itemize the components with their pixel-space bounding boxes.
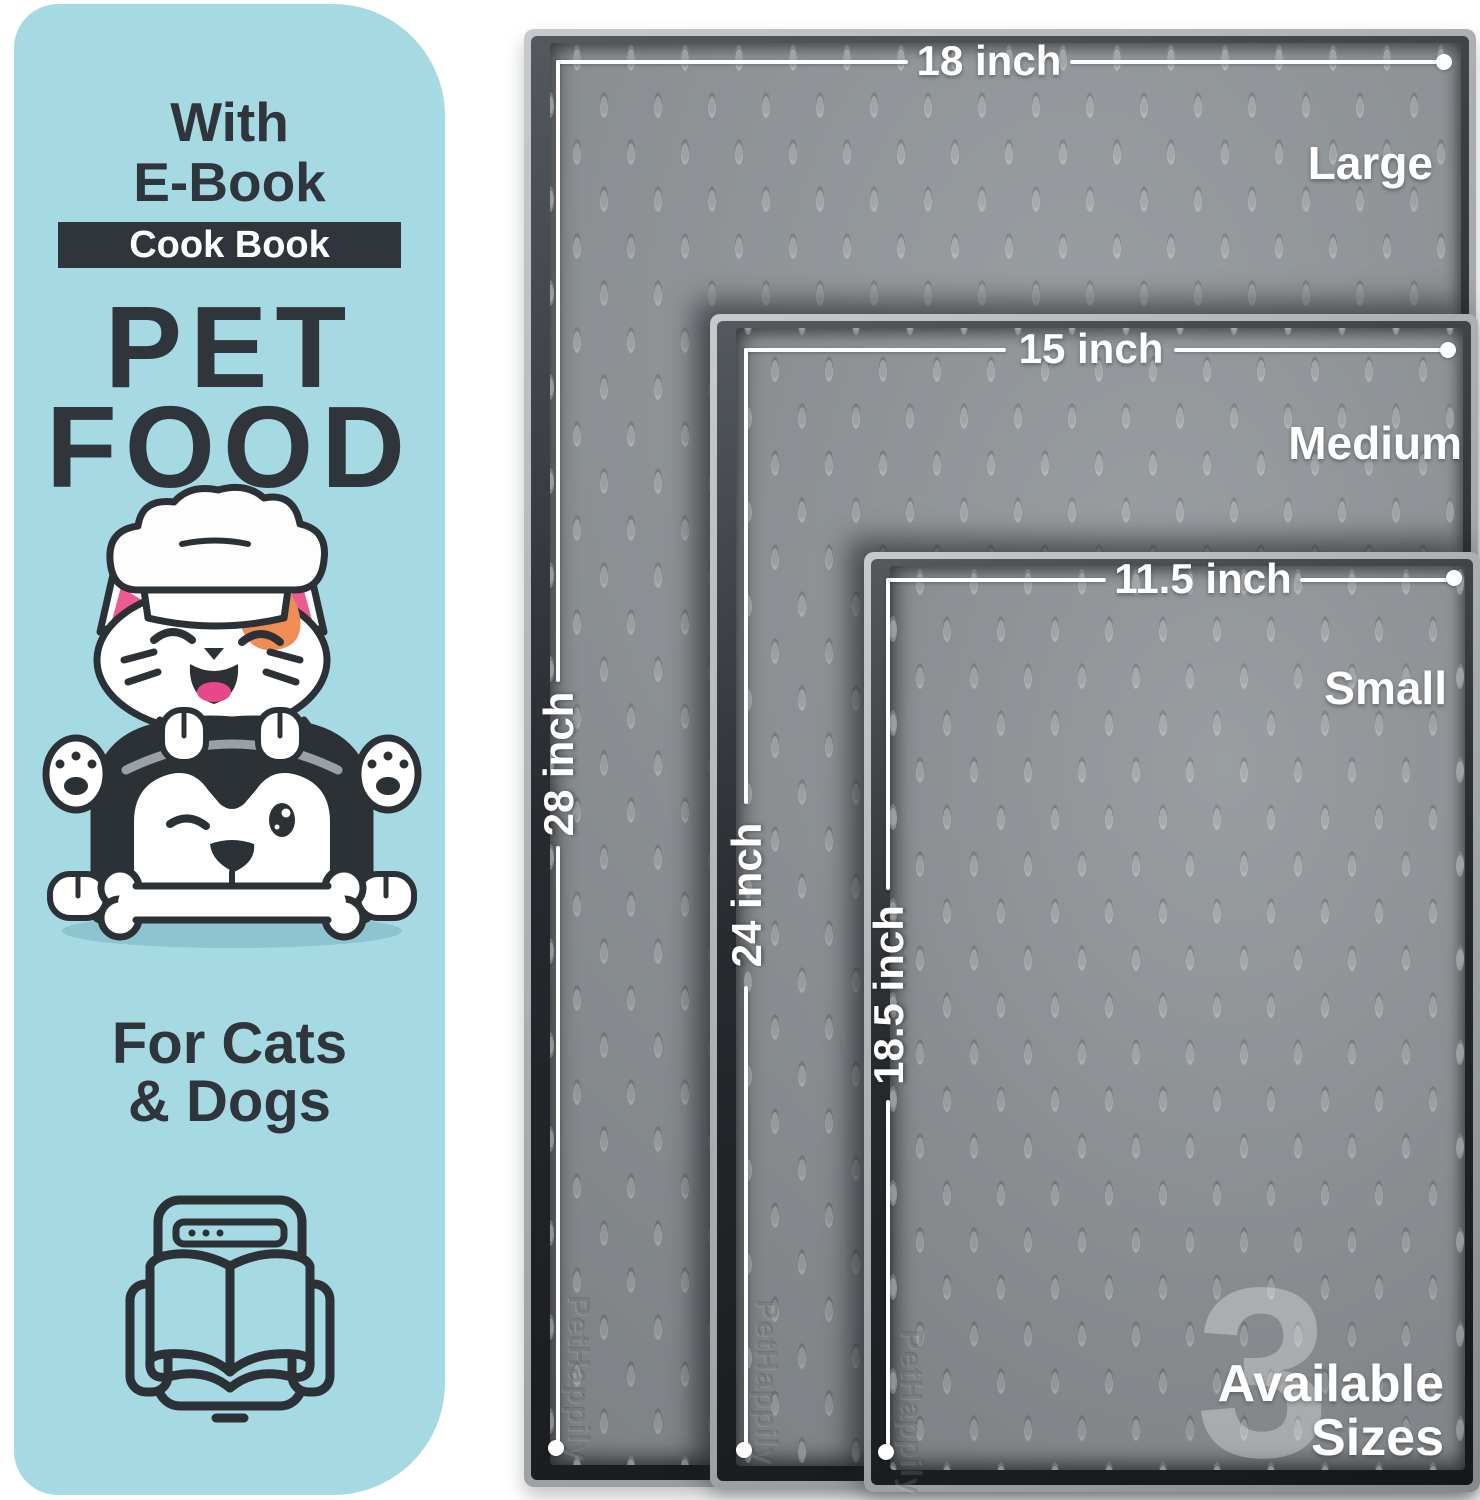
eyebrow-line1: With [14, 90, 445, 154]
dog-open-eye [269, 803, 295, 837]
cookbook-badge: Cook Book [58, 222, 401, 268]
cat-chef-husky-illustration [42, 482, 422, 952]
medium-width-label: 15 inch [1008, 325, 1174, 373]
large-width-line-left [556, 60, 908, 64]
large-height-label: 28 inch [535, 664, 581, 864]
large-height-dot [548, 1440, 564, 1456]
medium-width-dot [1440, 342, 1456, 358]
sizes-caption-line1: Available [1218, 1354, 1444, 1414]
sizes-caption-line2: Sizes [1311, 1408, 1444, 1468]
small-width-dot [1446, 570, 1462, 586]
small-width-line-left [886, 578, 1106, 582]
medium-height-dot [736, 1442, 752, 1458]
large-width-dot [1436, 54, 1452, 70]
cat-tongue [197, 682, 231, 702]
large-height-line-top [556, 60, 560, 682]
small-height-line-bottom [886, 1100, 890, 1450]
small-height-label: 18.5 inch [865, 895, 911, 1095]
subtitle-line1: For Cats [14, 1010, 445, 1077]
small-size-label: Small [1324, 661, 1447, 715]
medium-width-line-left [744, 348, 1006, 352]
small-height-line-top [886, 578, 890, 890]
product-infographic: With E-Book Cook Book PET FOOD [0, 0, 1480, 1500]
ebook-icon [120, 1192, 340, 1432]
medium-size-label: Medium [1288, 416, 1462, 470]
subtitle-line2: & Dogs [14, 1068, 445, 1135]
medium-height-line-top [744, 348, 748, 804]
small-height-dot [878, 1444, 894, 1460]
eyebrow-line2: E-Book [14, 150, 445, 214]
small-width-label: 11.5 inch [1104, 555, 1302, 603]
medium-height-line-bottom [744, 986, 748, 1448]
left-info-panel: With E-Book Cook Book PET FOOD [14, 4, 445, 1495]
medium-height-label: 24 inch [723, 795, 769, 995]
large-width-line-right [1070, 60, 1442, 64]
large-height-line-bottom [556, 846, 560, 1446]
eye-glint [282, 809, 291, 818]
medium-width-line-right [1174, 348, 1446, 352]
eye-glint-small [275, 825, 280, 830]
small-width-line-right [1300, 578, 1452, 582]
large-size-label: Large [1308, 136, 1433, 190]
large-width-label: 18 inch [900, 37, 1078, 85]
